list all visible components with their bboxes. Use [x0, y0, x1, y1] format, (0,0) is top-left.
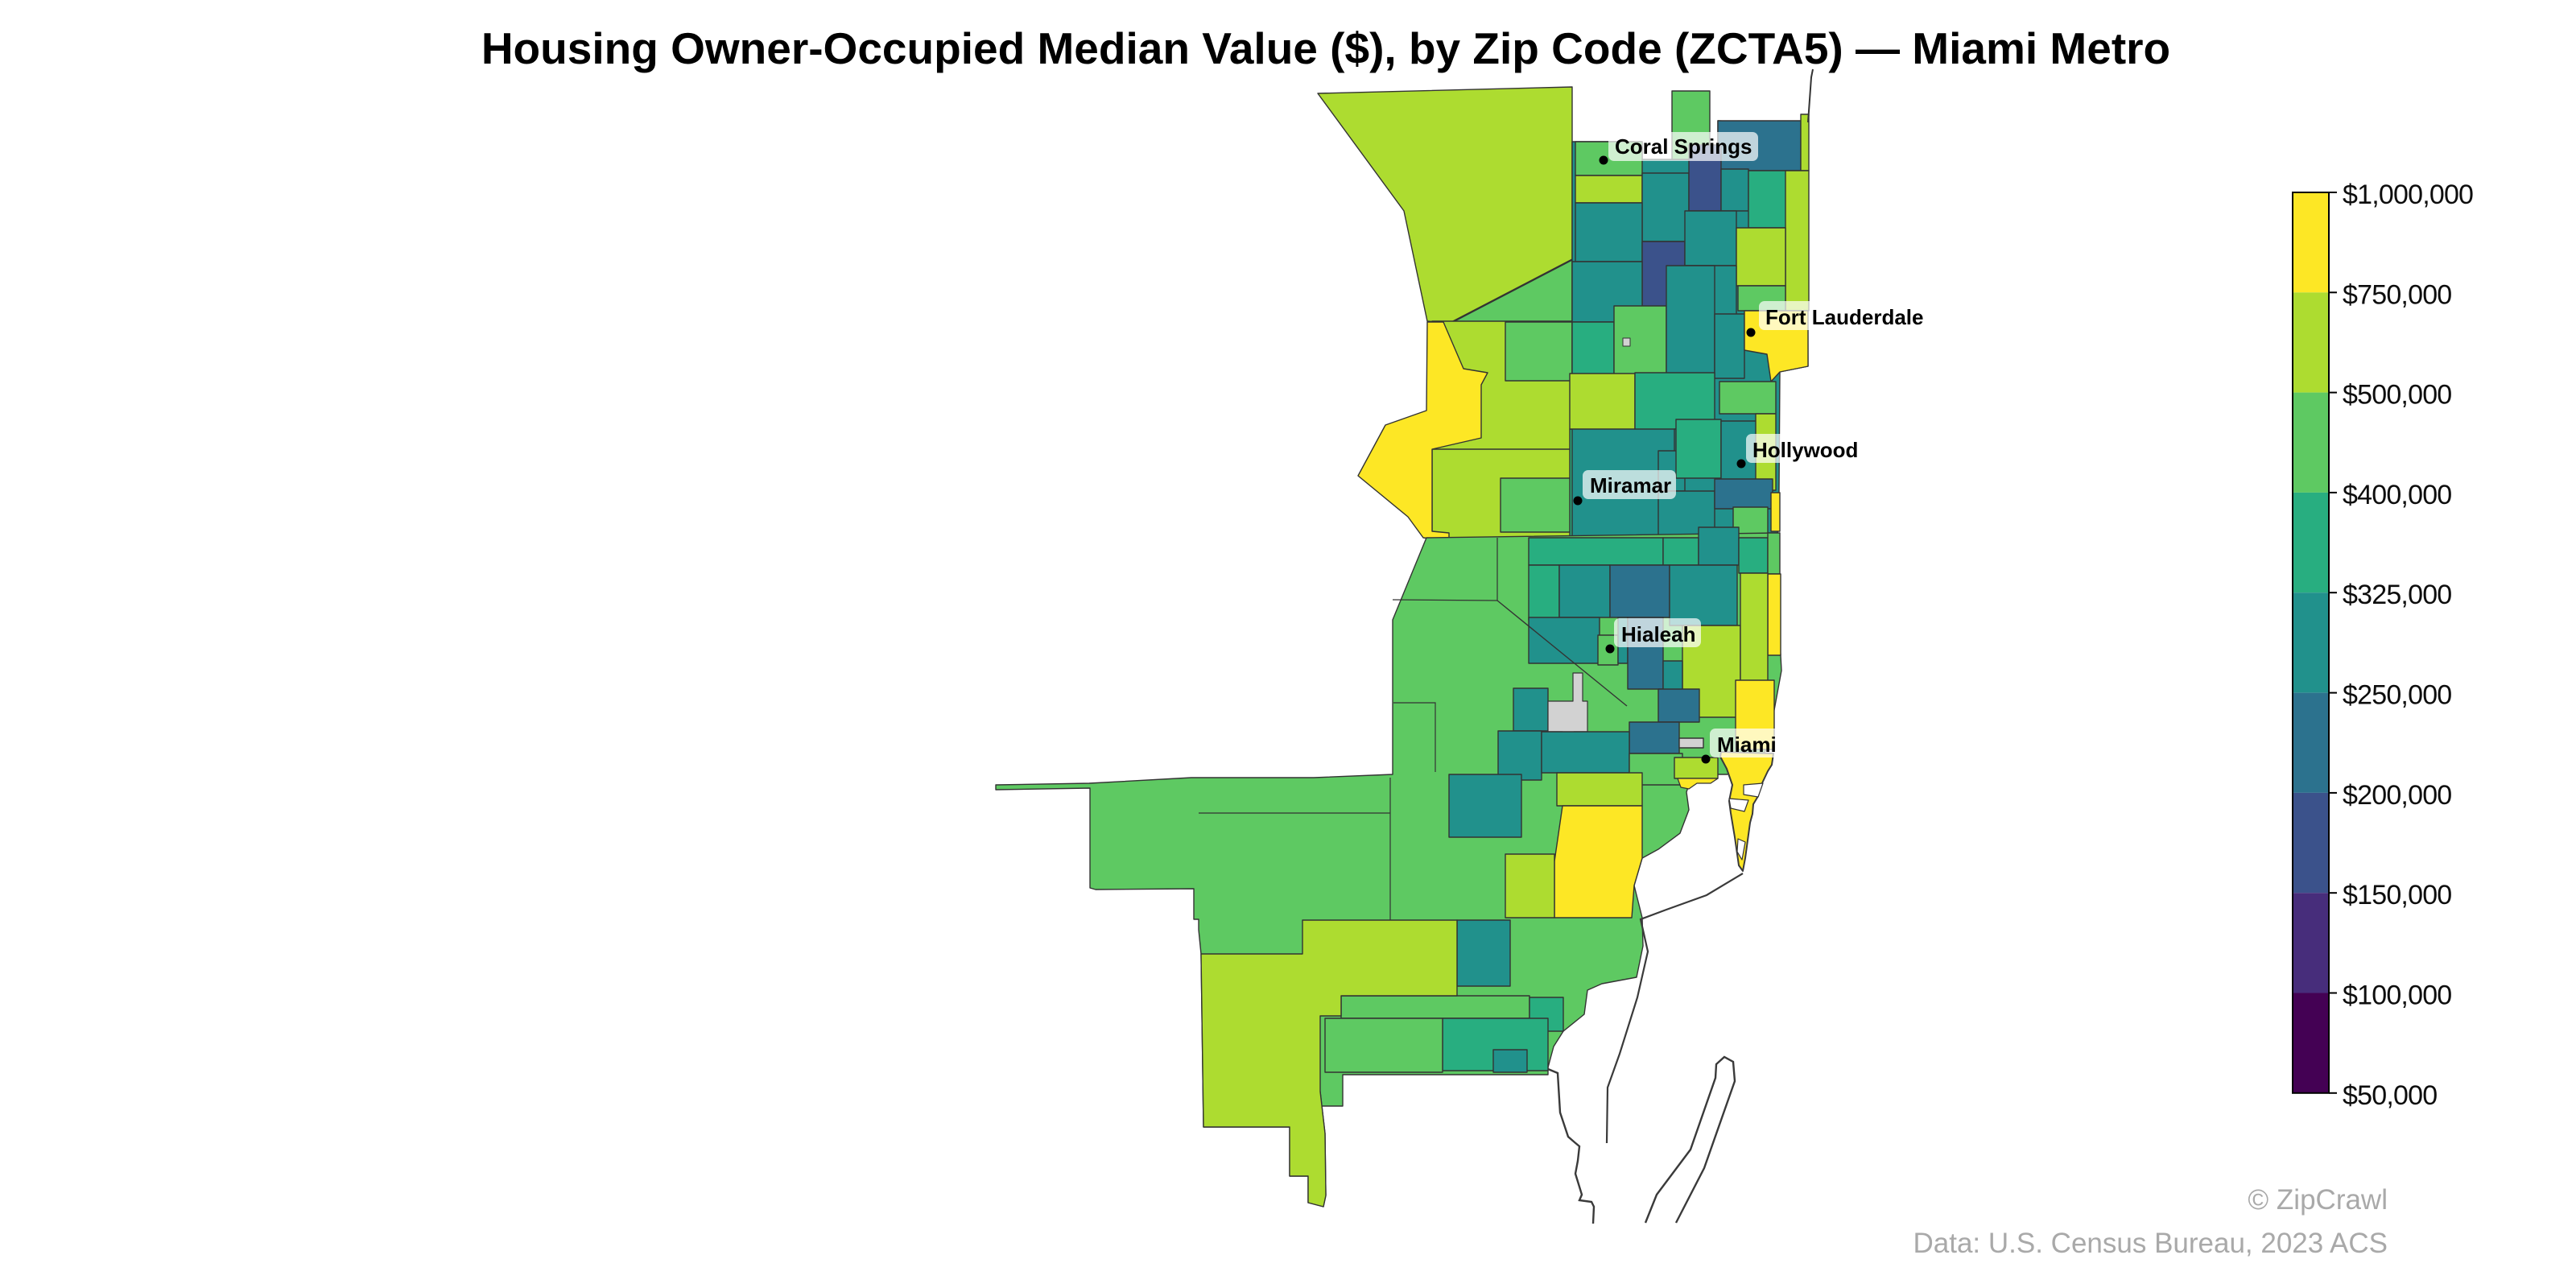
svg-text:$250,000: $250,000 — [2343, 680, 2451, 711]
svg-text:$150,000: $150,000 — [2343, 880, 2451, 910]
svg-text:Hollywood: Hollywood — [1752, 438, 1858, 462]
svg-text:© ZipCrawl: © ZipCrawl — [2248, 1184, 2388, 1216]
svg-text:$1,000,000: $1,000,000 — [2343, 180, 2473, 210]
svg-text:Miramar: Miramar — [1590, 473, 1671, 497]
svg-text:$500,000: $500,000 — [2343, 380, 2451, 411]
svg-text:Coral Springs: Coral Springs — [1615, 134, 1752, 159]
svg-text:$100,000: $100,000 — [2343, 980, 2451, 1011]
svg-text:Housing Owner-Occupied Median: Housing Owner-Occupied Median Value ($),… — [481, 23, 2170, 73]
svg-text:$400,000: $400,000 — [2343, 480, 2451, 510]
svg-text:$50,000: $50,000 — [2343, 1080, 2437, 1111]
svg-text:$325,000: $325,000 — [2343, 580, 2451, 610]
svg-text:Fort Lauderdale: Fort Lauderdale — [1765, 305, 1923, 329]
svg-text:Miami: Miami — [1717, 733, 1777, 757]
svg-text:Hialeah: Hialeah — [1621, 622, 1696, 646]
svg-text:$200,000: $200,000 — [2343, 780, 2451, 811]
svg-text:Data: U.S. Census Bureau, 2023: Data: U.S. Census Bureau, 2023 ACS — [1913, 1228, 2388, 1259]
svg-text:$750,000: $750,000 — [2343, 279, 2451, 310]
